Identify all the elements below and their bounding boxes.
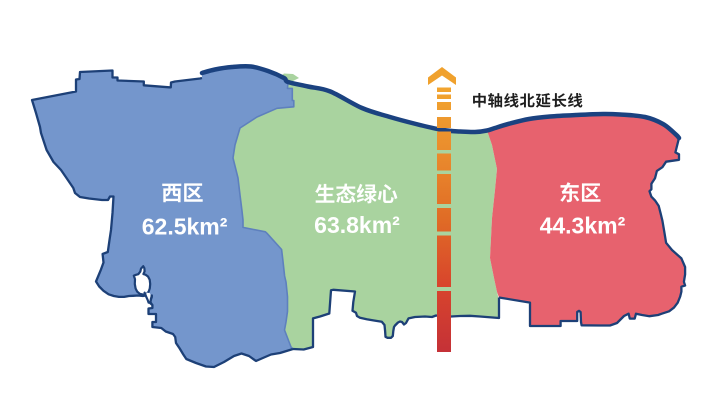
svg-text:63.8km²: 63.8km² — [314, 212, 400, 238]
svg-text:62.5km²: 62.5km² — [142, 214, 228, 240]
svg-text:44.3km²: 44.3km² — [540, 213, 626, 239]
